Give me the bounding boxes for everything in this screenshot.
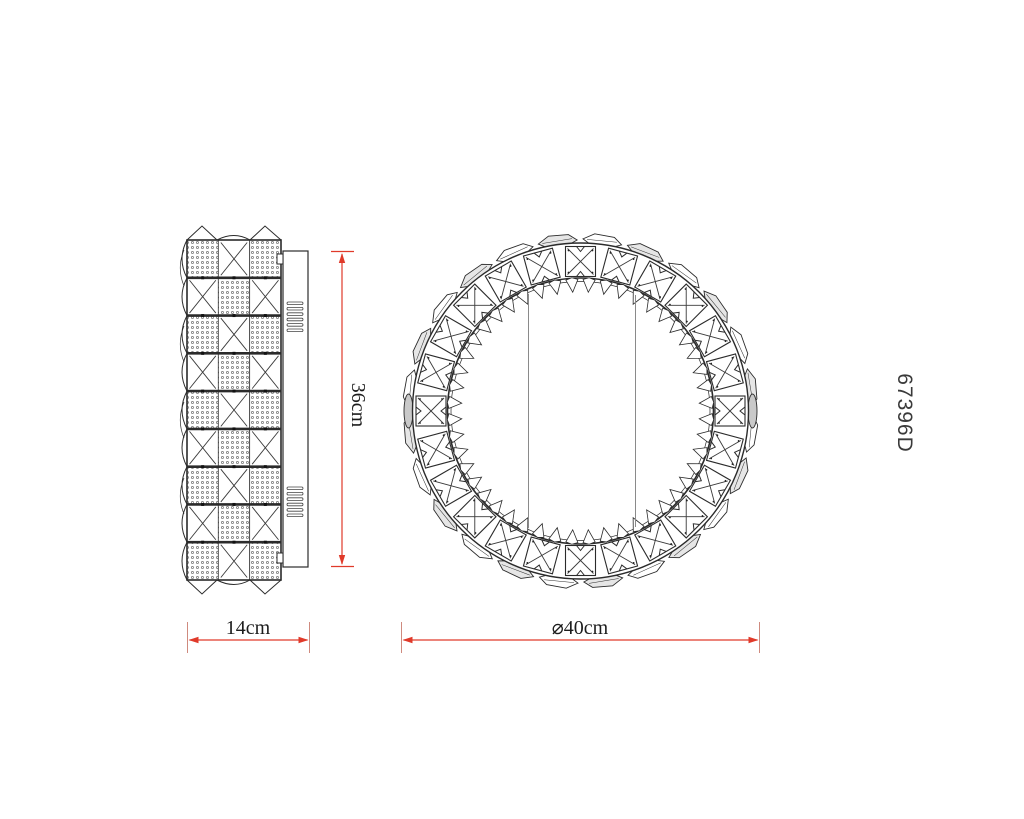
front-view bbox=[402, 232, 759, 589]
technical-drawing: 36cm 14cm ⌀40cm 67396D bbox=[0, 0, 1024, 819]
side-view bbox=[180, 226, 308, 594]
crystal-ring bbox=[402, 232, 759, 589]
crystal-panel bbox=[187, 240, 281, 580]
product-code-label: 67396D bbox=[893, 373, 916, 453]
diameter-dimension-label: ⌀40cm bbox=[552, 617, 609, 639]
width-dimension-label: 14cm bbox=[226, 617, 271, 639]
height-dimension-label: 36cm bbox=[347, 383, 369, 428]
drawing-canvas: 36cm 14cm ⌀40cm 67396D bbox=[0, 0, 1024, 819]
